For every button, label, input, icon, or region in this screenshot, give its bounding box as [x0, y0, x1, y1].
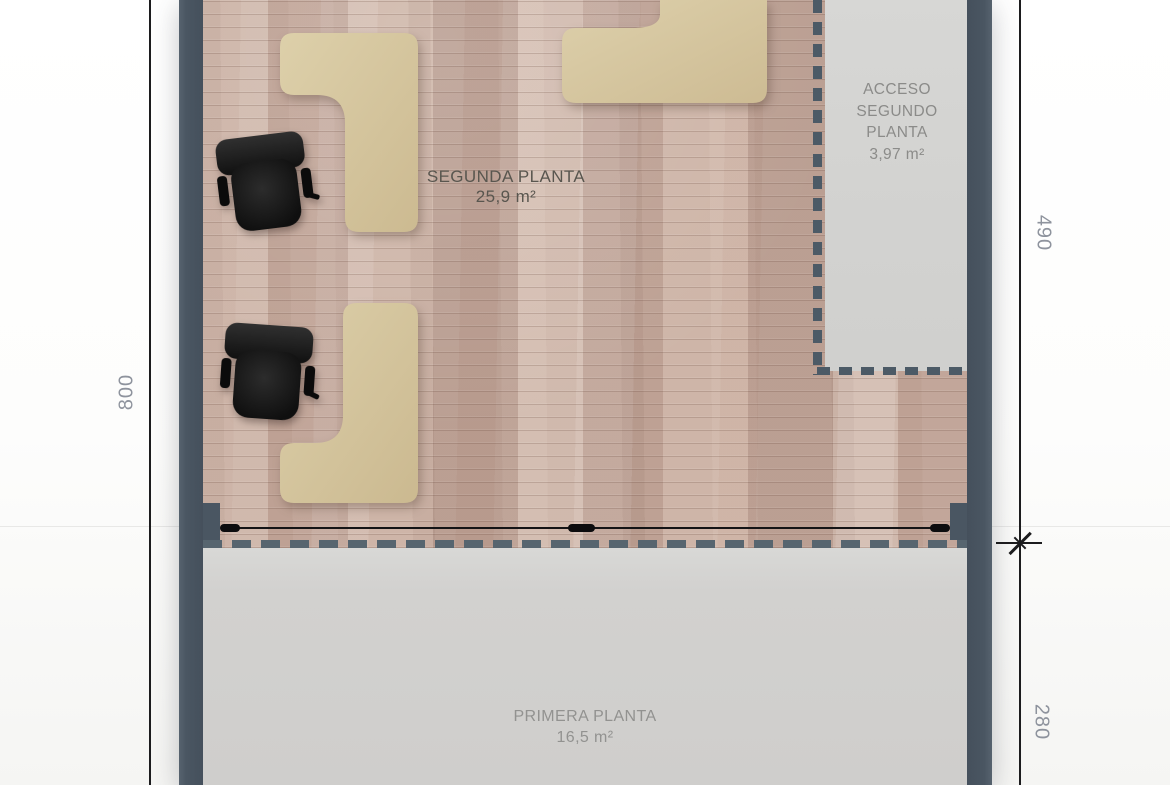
chair-armrest-left: [220, 358, 232, 389]
office-chair-lower: [218, 322, 318, 420]
room-area: 16,5 m²: [485, 727, 685, 748]
room-name: SEGUNDA PLANTA: [406, 167, 606, 187]
door-jamb-right: [950, 503, 967, 540]
room-label-segunda-planta: SEGUNDA PLANTA 25,9 m²: [406, 167, 606, 207]
chair-seat: [229, 157, 303, 233]
wall-left: [179, 0, 203, 785]
dimension-label-800: 800: [116, 374, 139, 410]
sliding-door-end-left: [220, 524, 240, 532]
desk-l-shaped-top-center: [562, 0, 767, 103]
room-acceso-segundo-planta-floor: [825, 0, 967, 371]
access-boundary-dashed-vertical: [813, 0, 822, 375]
door-jamb-left: [203, 503, 220, 540]
room-name: ACCESO SEGUNDO PLANTA: [822, 79, 972, 144]
sliding-door-handle: [568, 524, 595, 532]
chair-seat: [232, 349, 303, 421]
room-label-primera-planta: PRIMERA PLANTA 16,5 m²: [485, 706, 685, 748]
floor-divider-dashed-line: [203, 540, 967, 548]
room-area: 25,9 m²: [406, 187, 606, 207]
room-name: PRIMERA PLANTA: [485, 706, 685, 727]
dimension-label-280: 280: [1030, 704, 1053, 740]
access-boundary-dashed-horizontal: [817, 367, 967, 375]
dimension-line-left: [149, 0, 151, 785]
room-area: 3,97 m²: [822, 144, 972, 166]
sliding-door-end-right: [930, 524, 950, 532]
room-label-acceso-segundo-planta: ACCESO SEGUNDO PLANTA 3,97 m²: [822, 79, 972, 165]
dimension-line-right: [1019, 0, 1021, 785]
room-primera-planta-floor: [203, 548, 967, 785]
floor-plan-canvas: SEGUNDA PLANTA 25,9 m² ACCESO SEGUNDO PL…: [0, 0, 1170, 785]
dimension-label-490: 490: [1032, 215, 1055, 251]
office-chair-upper: [212, 130, 317, 241]
